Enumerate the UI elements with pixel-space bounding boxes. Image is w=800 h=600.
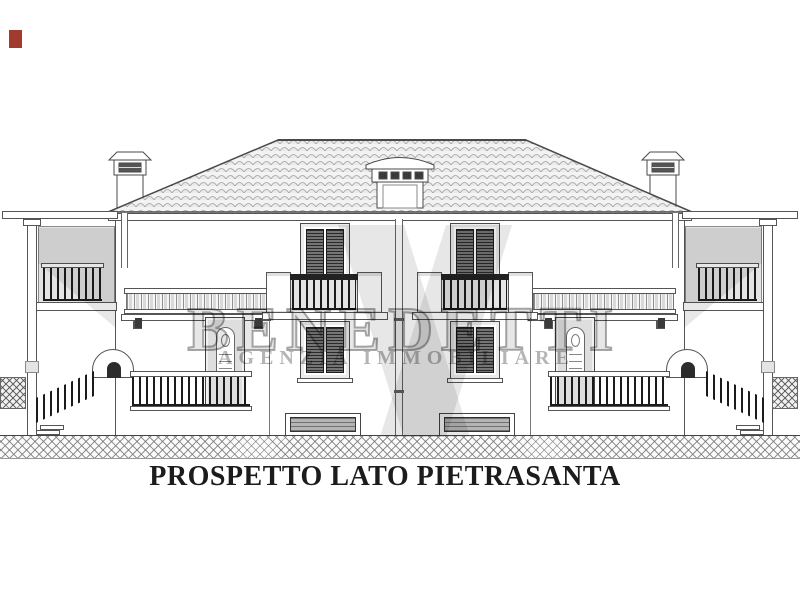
downpipe-right	[672, 213, 679, 268]
balcony-pier	[266, 272, 291, 314]
pipe-clamp	[394, 390, 404, 393]
niche-window	[681, 362, 695, 378]
shutter	[456, 229, 474, 275]
shutter	[306, 229, 324, 275]
right-wing-slab	[683, 302, 764, 311]
shutter	[456, 327, 474, 373]
door-glazing	[566, 327, 585, 375]
door-oval-motif	[571, 334, 580, 347]
niche-window	[107, 362, 121, 378]
downpipe-centre	[395, 219, 403, 436]
door-glazing	[216, 327, 235, 375]
right-canopy	[682, 211, 798, 219]
right-pillar-cap	[759, 219, 777, 226]
balcony-slab-left	[262, 312, 388, 320]
left-terrace-rail-bottom	[130, 406, 252, 411]
window-upper-right	[451, 224, 499, 280]
left-wing-railing	[43, 268, 102, 301]
right-terrace-rail-bottom	[548, 406, 670, 411]
balcony-railing-left	[292, 280, 356, 310]
downpipe-left	[121, 213, 128, 268]
shutter	[306, 327, 324, 373]
window-ground-right	[451, 322, 499, 378]
porch-corner-line	[269, 318, 270, 435]
basement-vent-left	[285, 413, 361, 436]
porch-corner-line	[530, 318, 531, 435]
left-pillar	[27, 226, 37, 435]
balcony-slab-right	[412, 312, 538, 320]
wall-lamp	[545, 318, 552, 328]
window-sill	[447, 378, 503, 383]
wall-lamp	[135, 318, 142, 328]
right-terrace-railing	[550, 377, 668, 406]
right-balustrade	[533, 294, 674, 309]
right-pillar-band	[761, 361, 775, 373]
balcony-pier	[508, 272, 533, 314]
shutter	[326, 327, 344, 373]
left-canopy	[2, 211, 118, 219]
door-oval-motif	[221, 334, 230, 347]
hip-roof	[100, 130, 700, 220]
balcony-pier	[357, 272, 382, 314]
left-pillar-cap	[23, 219, 41, 226]
shutter	[476, 327, 494, 373]
left-terrace-railing	[132, 377, 250, 406]
wall-lamp	[255, 318, 262, 328]
balcony-railing-right	[443, 280, 507, 310]
ground-hatch-strip	[0, 435, 800, 459]
left-porch-cornice	[121, 314, 271, 321]
elevation-drawing: BENEDETTI AGENZIA IMMOBILIARE PROSPETTO …	[0, 0, 800, 600]
left-wing-slab	[36, 302, 117, 311]
left-pillar-band	[25, 361, 39, 373]
left-balustrade	[126, 294, 267, 309]
arch-niche-right	[666, 349, 708, 378]
window-sill	[297, 378, 353, 383]
basement-vent-right	[439, 413, 515, 436]
fence-panel-right	[772, 377, 798, 409]
right-stair-railing	[706, 371, 764, 423]
balcony-pier	[417, 272, 442, 314]
fence-panel-left	[0, 377, 26, 409]
left-stair-railing	[36, 371, 94, 423]
window-ground-left	[301, 322, 349, 378]
drawing-caption: PROSPETTO LATO PIETRASANTA	[0, 461, 770, 493]
window-upper-left	[301, 224, 349, 280]
shutter	[476, 229, 494, 275]
corner-red-mark	[9, 30, 22, 48]
wall-lamp	[658, 318, 665, 328]
right-wing-railing	[698, 268, 757, 301]
pipe-clamp	[394, 318, 404, 321]
shutter	[326, 229, 344, 275]
